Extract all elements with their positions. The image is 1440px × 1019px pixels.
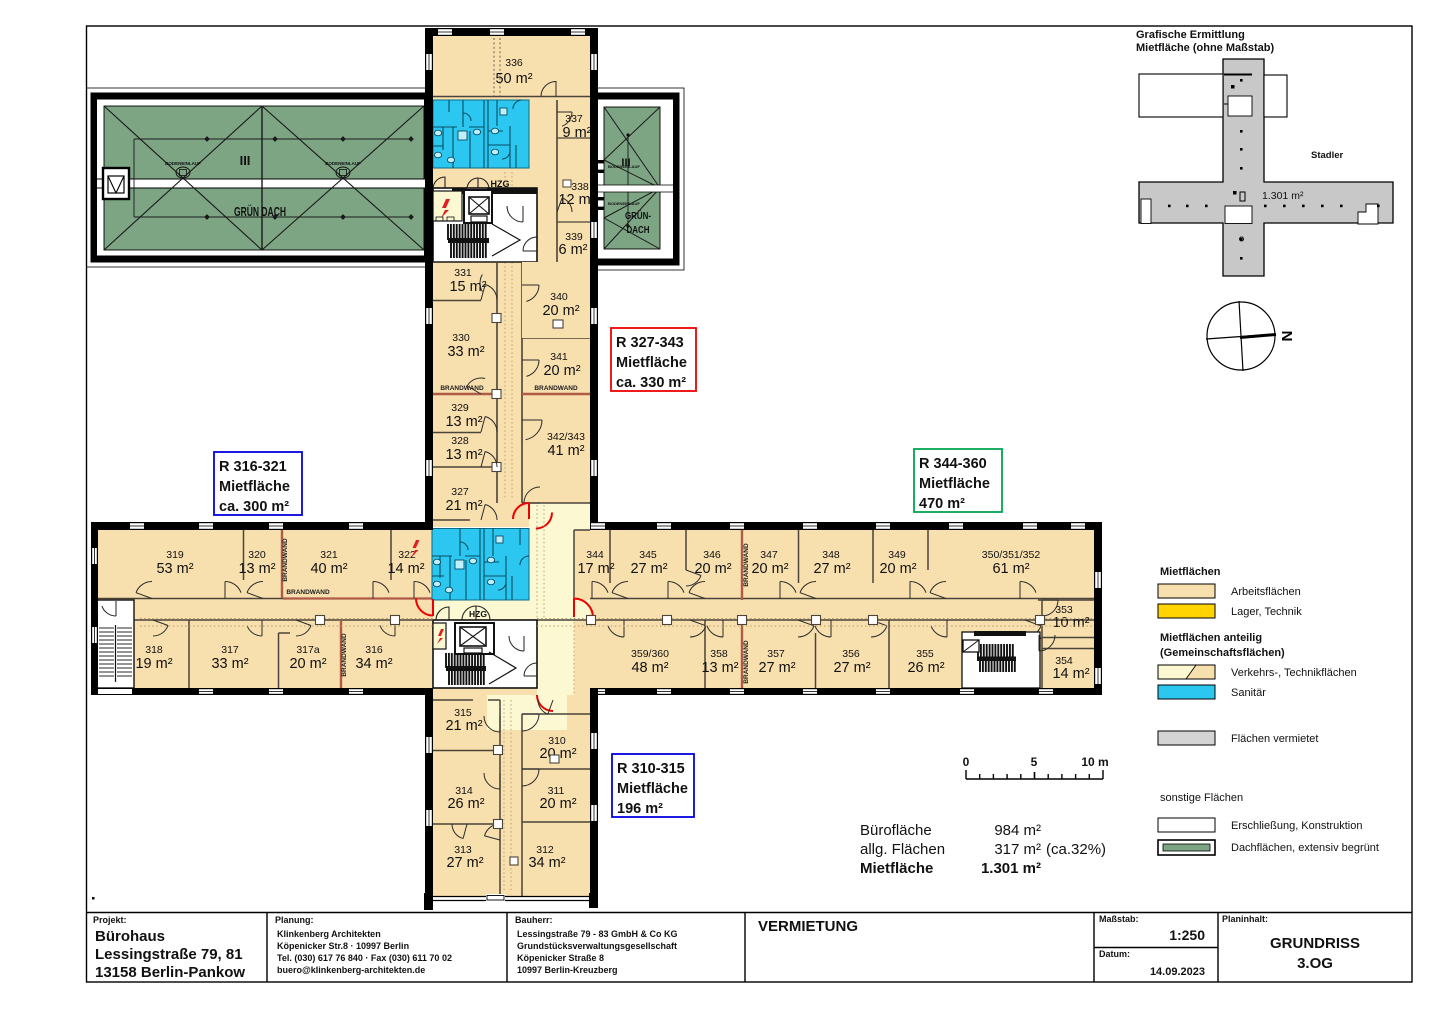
svg-text:10 m²: 10 m² (1052, 615, 1089, 631)
svg-text:329: 329 (451, 402, 469, 414)
svg-text:Lager, Technik: Lager, Technik (1231, 606, 1302, 618)
svg-text:50 m²: 50 m² (495, 71, 532, 87)
svg-text:33 m²: 33 m² (211, 656, 248, 672)
svg-text:Mietflächen: Mietflächen (1160, 566, 1221, 578)
svg-text:336: 336 (505, 57, 523, 69)
svg-text:1.301 m²: 1.301 m² (981, 860, 1041, 877)
svg-text:9 m²: 9 m² (563, 125, 592, 141)
svg-text:BODENEINLAUF: BODENEINLAUF (325, 161, 361, 166)
svg-text:27 m²: 27 m² (758, 660, 795, 676)
svg-text:41 m²: 41 m² (547, 443, 584, 459)
svg-text:R 344-360: R 344-360 (919, 456, 987, 472)
svg-text:R 310-315: R 310-315 (617, 761, 685, 777)
svg-text:Bauherr:: Bauherr: (515, 915, 553, 925)
svg-text:Mietfläche: Mietfläche (919, 476, 990, 492)
svg-text:1:250: 1:250 (1169, 927, 1205, 943)
svg-text:317: 317 (221, 644, 239, 656)
svg-text:Tel. (030) 617 76 840 · Fax (0: Tel. (030) 617 76 840 · Fax (030) 611 70… (277, 953, 452, 963)
svg-text:317a: 317a (296, 644, 320, 656)
svg-text:Sanitär: Sanitär (1231, 687, 1266, 699)
svg-text:GRUNDRISS: GRUNDRISS (1270, 935, 1360, 952)
svg-text:Köpenicker Str.8 · 10997 Berli: Köpenicker Str.8 · 10997 Berlin (277, 941, 409, 951)
svg-text:3.OG: 3.OG (1297, 955, 1333, 972)
svg-text:(ca.32%): (ca.32%) (1046, 841, 1106, 858)
svg-text:BRANDWAND: BRANDWAND (440, 385, 484, 392)
svg-text:Dachflächen, extensiv begrünt: Dachflächen, extensiv begrünt (1231, 842, 1379, 854)
svg-text:349: 349 (888, 549, 906, 561)
svg-text:27 m²: 27 m² (833, 660, 870, 676)
svg-text:allg. Flächen: allg. Flächen (860, 841, 945, 858)
svg-text:0: 0 (963, 755, 970, 769)
svg-text:Mietfläche: Mietfläche (219, 479, 290, 495)
svg-text:Mietfläche (ohne Maßstab): Mietfläche (ohne Maßstab) (1136, 42, 1274, 54)
svg-text:1.301 m²: 1.301 m² (1262, 190, 1304, 202)
svg-text:20 m²: 20 m² (751, 561, 788, 577)
svg-text:BODENEINLAUF: BODENEINLAUF (608, 201, 640, 206)
svg-text:26 m²: 26 m² (907, 660, 944, 676)
svg-text:6 m²: 6 m² (559, 242, 588, 258)
svg-text:348: 348 (822, 549, 840, 561)
svg-text:34 m²: 34 m² (355, 656, 392, 672)
svg-text:21 m²: 21 m² (445, 718, 482, 734)
svg-text:342/343: 342/343 (547, 431, 585, 443)
svg-text:26 m²: 26 m² (447, 796, 484, 812)
svg-text:R 327-343: R 327-343 (616, 335, 684, 351)
svg-text:Köpenicker Straße 8: Köpenicker Straße 8 (517, 953, 604, 963)
svg-text:DACH: DACH (627, 224, 650, 236)
svg-text:BRANDWAND: BRANDWAND (341, 633, 348, 677)
svg-text:20 m²: 20 m² (543, 363, 580, 379)
svg-text:(Gemeinschaftsflächen): (Gemeinschaftsflächen) (1160, 647, 1285, 659)
svg-text:984 m²: 984 m² (994, 822, 1041, 839)
svg-text:Mietfläche: Mietfläche (617, 781, 688, 797)
svg-text:357: 357 (767, 648, 785, 660)
svg-text:ca. 300 m²: ca. 300 m² (219, 499, 289, 515)
svg-text:Klinkenberg Architekten: Klinkenberg Architekten (277, 929, 381, 939)
svg-text:358: 358 (710, 648, 728, 660)
svg-text:BRANDWAND: BRANDWAND (534, 385, 578, 392)
svg-text:27 m²: 27 m² (446, 855, 483, 871)
svg-text:318: 318 (145, 644, 163, 656)
svg-text:13 m²: 13 m² (445, 447, 482, 463)
svg-text:Maßstab:: Maßstab: (1099, 914, 1139, 924)
svg-text:359/360: 359/360 (631, 648, 669, 660)
svg-text:Verkehrs-, Technikflächen: Verkehrs-, Technikflächen (1231, 667, 1357, 679)
svg-text:III: III (240, 153, 251, 168)
svg-text:13 m²: 13 m² (701, 660, 738, 676)
svg-text:BRANDWAND: BRANDWAND (286, 589, 330, 596)
svg-text:Bürohaus: Bürohaus (95, 928, 165, 945)
svg-text:356: 356 (842, 648, 860, 660)
svg-text:330: 330 (452, 332, 470, 344)
svg-text:344: 344 (586, 549, 604, 561)
svg-text:5: 5 (1031, 755, 1038, 769)
svg-text:319: 319 (166, 549, 184, 561)
svg-text:III: III (621, 157, 630, 169)
svg-text:345: 345 (639, 549, 657, 561)
svg-text:GRÜN-: GRÜN- (625, 209, 651, 222)
svg-text:40 m²: 40 m² (310, 561, 347, 577)
svg-text:27 m²: 27 m² (813, 561, 850, 577)
svg-text:20 m²: 20 m² (539, 796, 576, 812)
svg-text:21 m²: 21 m² (445, 498, 482, 514)
svg-text:13158 Berlin-Pankow: 13158 Berlin-Pankow (95, 964, 245, 981)
svg-text:BODENEINLAUF: BODENEINLAUF (165, 161, 201, 166)
svg-text:317 m²: 317 m² (994, 841, 1041, 858)
svg-text:VERMIETUNG: VERMIETUNG (758, 918, 858, 935)
svg-text:Lessingstraße 79, 81: Lessingstraße 79, 81 (95, 946, 243, 963)
svg-text:Stadler: Stadler (1311, 150, 1344, 161)
svg-text:347: 347 (760, 549, 778, 561)
svg-text:346: 346 (703, 549, 721, 561)
svg-text:Grafische Ermittlung: Grafische Ermittlung (1136, 29, 1245, 41)
svg-text:buero@klinkenberg-architekten.: buero@klinkenberg-architekten.de (277, 965, 425, 975)
svg-text:Planinhalt:: Planinhalt: (1222, 914, 1268, 924)
svg-text:17 m²: 17 m² (577, 561, 614, 577)
svg-text:Flächen vermietet: Flächen vermietet (1231, 733, 1318, 745)
svg-text:13 m²: 13 m² (445, 414, 482, 430)
svg-text:470 m²: 470 m² (919, 496, 965, 512)
svg-text:R 316-321: R 316-321 (219, 459, 287, 475)
svg-text:10 m: 10 m (1081, 755, 1108, 769)
svg-text:34 m²: 34 m² (528, 855, 565, 871)
svg-text:Bürofläche: Bürofläche (860, 822, 932, 839)
svg-text:321: 321 (320, 549, 338, 561)
svg-text:Erschließung, Konstruktion: Erschließung, Konstruktion (1231, 820, 1362, 832)
svg-text:14 m²: 14 m² (1052, 666, 1089, 682)
svg-text:350/351/352: 350/351/352 (982, 549, 1041, 561)
svg-text:337: 337 (565, 113, 583, 125)
svg-text:Lessingstraße 79 - 83 GmbH & C: Lessingstraße 79 - 83 GmbH & Co KG (517, 929, 678, 939)
svg-text:331: 331 (454, 267, 472, 279)
svg-text:10997 Berlin-Kreuzberg: 10997 Berlin-Kreuzberg (517, 965, 618, 975)
svg-text:20 m²: 20 m² (542, 303, 579, 319)
svg-text:Arbeitsflächen: Arbeitsflächen (1231, 586, 1301, 598)
svg-text:33 m²: 33 m² (447, 344, 484, 360)
svg-text:Grundstücksverwaltungsgesellsc: Grundstücksverwaltungsgesellschaft (517, 941, 677, 951)
svg-text:19 m²: 19 m² (135, 656, 172, 672)
svg-text:13 m²: 13 m² (238, 561, 275, 577)
svg-text:Datum:: Datum: (1099, 949, 1130, 959)
svg-text:Mietfläche: Mietfläche (616, 355, 687, 371)
svg-text:BRANDWAND: BRANDWAND (743, 543, 750, 587)
svg-text:Planung:: Planung: (275, 915, 314, 925)
svg-text:355: 355 (916, 648, 934, 660)
svg-text:Projekt:: Projekt: (93, 915, 127, 925)
svg-text:N: N (1278, 331, 1295, 342)
svg-text:14 m²: 14 m² (387, 561, 424, 577)
svg-text:328: 328 (451, 435, 469, 447)
svg-text:320: 320 (248, 549, 266, 561)
svg-text:20 m²: 20 m² (879, 561, 916, 577)
svg-text:Mietflächen anteilig: Mietflächen anteilig (1160, 632, 1262, 644)
svg-text:GRÜN DACH: GRÜN DACH (234, 204, 286, 219)
svg-text:53 m²: 53 m² (156, 561, 193, 577)
svg-text:48 m²: 48 m² (631, 660, 668, 676)
svg-text:BRANDWAND: BRANDWAND (743, 640, 750, 684)
svg-text:20 m²: 20 m² (289, 656, 326, 672)
svg-text:61 m²: 61 m² (992, 561, 1029, 577)
svg-text:HZG: HZG (469, 609, 487, 619)
svg-text:ca. 330 m²: ca. 330 m² (616, 375, 686, 391)
svg-text:BRANDWAND: BRANDWAND (282, 538, 289, 582)
svg-text:341: 341 (550, 351, 568, 363)
svg-text:15 m²: 15 m² (449, 279, 486, 295)
svg-text:327: 327 (451, 486, 469, 498)
svg-text:340: 340 (550, 291, 568, 303)
svg-text:196 m²: 196 m² (617, 801, 663, 817)
svg-text:27 m²: 27 m² (630, 561, 667, 577)
svg-text:316: 316 (365, 644, 383, 656)
svg-text:14.09.2023: 14.09.2023 (1150, 966, 1205, 978)
svg-text:Mietfläche: Mietfläche (860, 860, 933, 877)
svg-text:sonstige Flächen: sonstige Flächen (1160, 792, 1243, 804)
